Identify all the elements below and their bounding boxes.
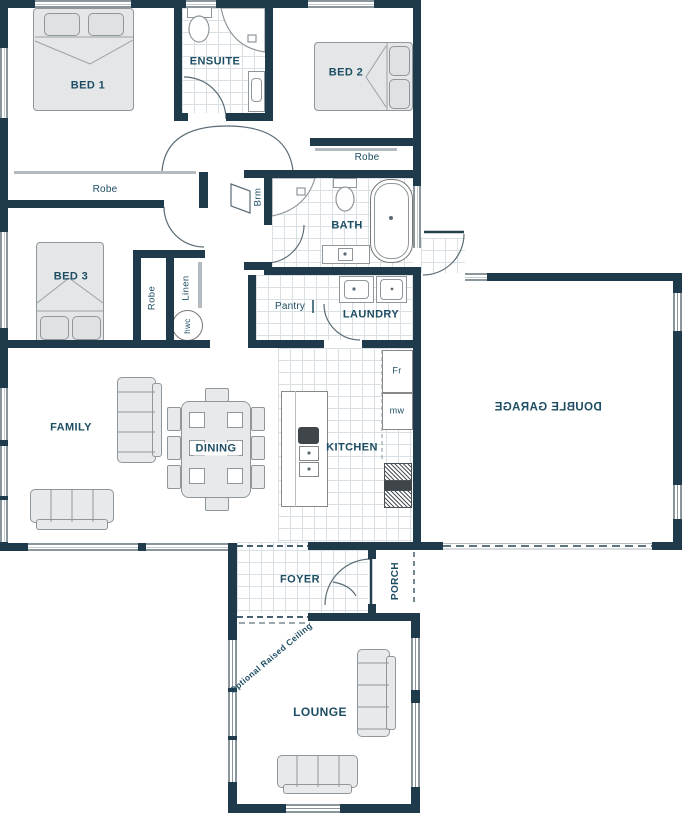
room-label-ensuite: ENSUITE [190, 57, 240, 68]
window [286, 804, 340, 813]
room-label-kitchen: KITCHEN [326, 443, 378, 454]
room-label-garage: DOUBLE GARAGE [494, 402, 601, 414]
wall [166, 258, 174, 340]
window [308, 0, 374, 8]
window [411, 638, 420, 690]
wall [264, 267, 421, 275]
window [146, 543, 228, 551]
wall [308, 542, 420, 550]
bath-shower-head [297, 188, 305, 195]
wall [264, 178, 272, 225]
room-label-family: FAMILY [50, 423, 92, 434]
bed3-door-arc [164, 207, 204, 247]
wall [174, 113, 188, 121]
ensuite-shower-head [248, 35, 256, 42]
window [0, 500, 8, 542]
room-label-bed1: BED 1 [71, 81, 105, 92]
label-robe-bed3: Robe [147, 286, 157, 310]
hall-double-door-arc [162, 126, 293, 171]
wall [204, 200, 208, 208]
garage-door-arc [423, 234, 464, 275]
label-hot-water-cylinder: hwc [184, 318, 192, 333]
window [0, 388, 8, 440]
wall [244, 170, 421, 178]
label-microwave: mw [390, 407, 405, 416]
wall [133, 250, 141, 340]
room-label-bed2: BED 2 [329, 68, 363, 79]
wall [0, 200, 164, 208]
ensuite-corner-shower [221, 8, 265, 52]
label-fridge: Fr [392, 367, 401, 376]
label-broom-cupboard: Brm [253, 188, 263, 207]
wall [226, 113, 273, 121]
foyer-leader-line [333, 582, 356, 596]
room-label-bath: BATH [331, 221, 362, 232]
room-label-laundry: LAUNDRY [343, 310, 399, 321]
wall [310, 138, 413, 146]
floor-plan: BED 1 ENSUITE BED 2 Robe Robe Brm BATH B… [0, 0, 690, 815]
label-robe-bed1: Robe [93, 185, 118, 195]
window [35, 0, 131, 8]
wall [0, 340, 210, 348]
bath-corner-shower [272, 178, 315, 216]
window [0, 48, 8, 118]
ensuite-door-arc [184, 77, 226, 119]
label-linen: Linen [181, 275, 191, 300]
broom-cupboard-door [231, 184, 250, 213]
wall [413, 267, 421, 550]
room-label-lounge: LOUNGE [293, 706, 347, 718]
bath-toilet-bowl [336, 187, 354, 211]
window [0, 232, 8, 328]
wall [652, 542, 682, 550]
ensuite-toilet-bowl [189, 16, 209, 42]
wall [133, 250, 205, 258]
garage-door-threshold [465, 273, 487, 281]
window [413, 186, 421, 248]
room-label-foyer: FOYER [280, 575, 320, 586]
bath-door-arc [266, 225, 304, 263]
window [0, 446, 8, 496]
window [28, 543, 138, 551]
wall [248, 340, 324, 348]
window [186, 0, 216, 8]
label-robe-bed2: Robe [355, 153, 380, 163]
wall [308, 613, 411, 621]
wall [265, 0, 273, 121]
wall [248, 275, 256, 348]
wall [465, 273, 677, 281]
wall [174, 0, 182, 121]
room-label-pantry: Pantry [275, 302, 305, 312]
room-label-dining: DINING [194, 443, 239, 456]
front-door-arc [325, 559, 371, 605]
window [228, 740, 237, 782]
window [411, 703, 420, 787]
wall [368, 550, 376, 559]
window [228, 692, 237, 736]
room-label-porch: PORCH [391, 562, 401, 600]
window [673, 293, 682, 331]
room-label-bed3: BED 3 [54, 272, 88, 283]
wall [228, 543, 237, 621]
window [673, 485, 682, 519]
